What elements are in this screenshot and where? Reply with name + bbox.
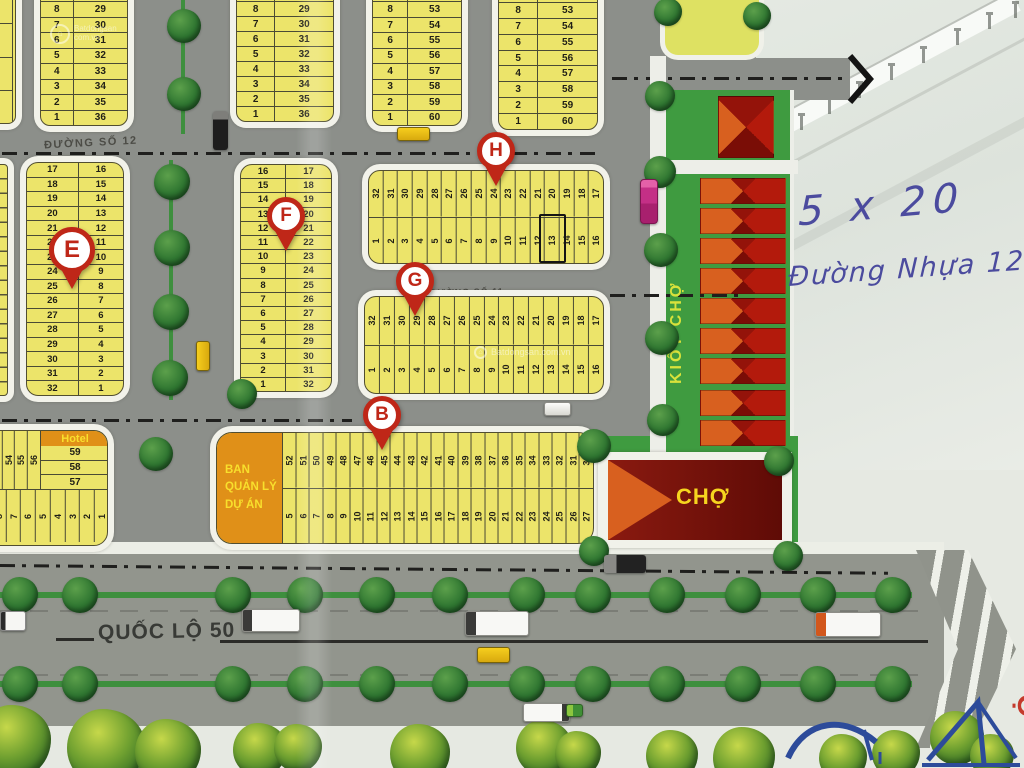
market-stall-icon (700, 358, 786, 384)
lot-number: 4 (241, 335, 285, 349)
lot-number: 58 (538, 82, 597, 98)
chevron-arrow-icon (844, 54, 878, 104)
lot-column: 987654321 (41, 0, 74, 125)
market-stall-icon (700, 178, 786, 204)
tree-icon (647, 404, 679, 436)
lot-number: 17 (444, 489, 458, 544)
lot-number: 4 (409, 346, 424, 394)
market-building: CHỢ (598, 452, 792, 548)
car-icon (477, 647, 510, 663)
highway-center-line (56, 638, 94, 641)
lot-number: 3 (373, 80, 407, 95)
lot-number: 18 (574, 171, 589, 217)
lot-number: 21 (528, 297, 543, 345)
bush-icon (555, 731, 601, 768)
block-hotel: 5253545556 Hotel 595857 987654321 (0, 424, 114, 552)
lot-number: 3 (499, 82, 537, 98)
lot-number: 11 (515, 218, 530, 264)
blue-sketch-bridge (780, 712, 890, 768)
block-top-4: 987654321 525354555657585960 (492, 0, 604, 136)
lamp-post-icon (922, 49, 925, 63)
lot-number: 8 (41, 2, 73, 17)
block-top-1: 987654321 282930313233343536 (34, 0, 134, 132)
car-icon (397, 127, 430, 141)
lot-number: 7 (454, 346, 469, 394)
truck-icon (523, 703, 570, 722)
lot-number: 6 (439, 346, 454, 394)
pin-label: B (363, 396, 401, 434)
lot-number: 3 (241, 349, 285, 363)
tree-icon (725, 577, 761, 613)
lot-number: 30 (286, 349, 331, 363)
lot-number: 25 (552, 489, 566, 544)
tree-icon (432, 666, 468, 702)
lot-number: 1 (237, 107, 274, 121)
lot-number: 12 (377, 489, 391, 544)
lot-number: 16 (241, 165, 285, 179)
edge-red-text: Ộ (1010, 694, 1024, 717)
lot-number: 6 (237, 32, 274, 47)
lot-number: 18 (573, 297, 588, 345)
lot-number: 2 (383, 218, 398, 264)
lot-number: 7 (237, 17, 274, 32)
tree-icon (359, 577, 395, 613)
lot-number: 14 (404, 489, 418, 544)
lot-number: 9 (486, 218, 501, 264)
tree-icon (287, 577, 323, 613)
lot-number: 4 (237, 62, 274, 77)
lot-number: 31 (275, 32, 333, 47)
tree-icon (2, 666, 38, 702)
lot-column: 9876 (0, 0, 13, 123)
lot-number: 57 (408, 64, 461, 79)
lot-number: 6 (241, 307, 285, 321)
lot-number: 20 (27, 207, 78, 222)
tree-icon (139, 437, 173, 471)
office-line: DỰ ÁN (225, 497, 282, 514)
lot-number: 17 (27, 163, 78, 178)
blue-sketch-crane (918, 688, 1024, 768)
lot-number: 19 (558, 297, 573, 345)
lot-number: 25 (286, 279, 331, 293)
lot-number: 35 (275, 92, 333, 107)
tree-icon (167, 9, 201, 43)
lot-number: 7 (456, 218, 471, 264)
lot-number: 17 (286, 165, 331, 179)
lot-number: 5 (35, 490, 50, 542)
car-icon (544, 402, 571, 416)
watermark-logo-icon: ⌂ (50, 24, 70, 44)
road-centerline (612, 77, 842, 80)
tree-icon (773, 541, 803, 571)
lot-number: 57 (538, 66, 597, 82)
pin-f: F (267, 197, 305, 251)
tree-icon (649, 577, 685, 613)
tree-icon (215, 577, 251, 613)
lot-number: 35 (512, 433, 526, 488)
tree-icon (649, 666, 685, 702)
lot-number: 24 (484, 297, 499, 345)
pin-e: E (49, 227, 95, 289)
lot-number: 2 (79, 490, 94, 542)
market-stall-icon (700, 420, 786, 446)
lot-number: 16 (79, 163, 123, 178)
lot-number: 2 (237, 92, 274, 107)
lot-number: 26 (286, 293, 331, 307)
lamp-post-icon (890, 66, 893, 80)
tree-icon (577, 429, 611, 463)
lot-number: 20 (544, 171, 559, 217)
watermark-text: Batdongsan (74, 24, 117, 33)
lot-number: 56 (408, 49, 461, 64)
lot-number: 27 (579, 489, 593, 544)
truck-icon (604, 555, 646, 573)
car-icon (566, 704, 583, 717)
lot-number: 29 (27, 338, 78, 353)
truck-icon (242, 609, 300, 632)
lot-number: 32 (369, 171, 383, 217)
lot-number: 1 (365, 346, 379, 394)
lot-number: 17 (588, 171, 603, 217)
lot-number: 6 (296, 489, 310, 544)
lot-number: 8 (323, 489, 337, 544)
lot-number: 54 (2, 431, 15, 489)
lot-number: 7 (6, 490, 21, 542)
lot-number: 2 (499, 98, 537, 114)
lot-number: 11 (363, 489, 377, 544)
lot-number: 33 (275, 62, 333, 77)
pin-label: E (49, 227, 95, 273)
tree-icon (215, 666, 251, 702)
lot-number: 26 (566, 489, 580, 544)
lot-number: 2 (379, 346, 394, 394)
lot-number: 42 (417, 433, 431, 488)
lot-number: 5 (237, 47, 274, 62)
lot-number: 1 (499, 114, 537, 129)
lot-number: 27 (286, 307, 331, 321)
lot-number: 16 (431, 489, 445, 544)
tree-icon (509, 577, 545, 613)
lot-number: 24 (539, 489, 553, 544)
lot-number: 21 (498, 489, 512, 544)
lot-number: 5 (79, 323, 123, 338)
lot-column: 282930313233343536 (275, 0, 333, 121)
lot-row: 987654321 (0, 490, 108, 542)
lot-number: 33 (539, 433, 553, 488)
lot-number: 28 (286, 321, 331, 335)
lot-number: 5 (41, 49, 73, 64)
lot-number: 1 (94, 490, 108, 542)
bush-icon (274, 724, 322, 768)
tree-icon (153, 294, 189, 330)
market-stall-icon (700, 390, 786, 416)
lot-number: 5 (283, 489, 296, 544)
lot-number: 15 (417, 489, 431, 544)
tree-icon (575, 577, 611, 613)
lot-number: 32 (275, 47, 333, 62)
lot-number: 14 (79, 192, 123, 207)
tree-icon (800, 577, 836, 613)
lot-number: 3 (41, 80, 73, 95)
market-stall-icon (700, 268, 786, 294)
market-label: CHỢ (676, 484, 730, 510)
lot-number: 9 (241, 264, 285, 278)
lot-number: 43 (404, 433, 418, 488)
lot-row: 5251504948474645444342414039383736353433… (283, 433, 593, 489)
block-top-3: 987654321 525354555657585960 (366, 0, 468, 132)
lot-number: 22 (513, 297, 528, 345)
block-b: BAN QUẢN LÝ DỰ ÁN 5251504948474645444342… (210, 426, 600, 550)
watermark-logo-icon: ⌂ (474, 346, 487, 359)
lot-number: 8 (499, 3, 537, 19)
lot-number: 2 (79, 367, 123, 382)
block-top-partial: 9876 (0, 0, 22, 130)
lot-number: 31 (286, 364, 331, 378)
lot-column: 987654321 (373, 0, 408, 125)
highway-label: QUỐC LỘ 50 (98, 619, 236, 646)
watermark: ⌂ Batdongsan com.vn (50, 24, 117, 44)
tree-icon (764, 446, 794, 476)
bush-icon (713, 727, 775, 768)
lot-number: 54 (408, 18, 461, 33)
tree-icon (62, 666, 98, 702)
bush-icon (390, 724, 450, 768)
highway-center-line (220, 640, 928, 643)
tree-icon (62, 577, 98, 613)
lot-column: 282930313233343536 (74, 0, 127, 125)
lot-number: 22 (512, 489, 526, 544)
market-stall-icon (700, 238, 786, 264)
lot-number: 47 (350, 433, 364, 488)
lot-number: 41 (431, 433, 445, 488)
lot-number: 58 (408, 80, 461, 95)
lot-number: 29 (275, 2, 333, 17)
lot-column: 525354555657585960 (408, 0, 461, 125)
tree-icon (154, 230, 190, 266)
pin-label: H (477, 132, 515, 170)
lot-number: 23 (286, 250, 331, 264)
lot-number: 15 (241, 179, 285, 193)
lot-number: 20 (485, 489, 499, 544)
lot-number: 51 (296, 433, 310, 488)
lot-number: 21 (530, 171, 545, 217)
tree-icon (2, 577, 38, 613)
lot-number: 6 (79, 309, 123, 324)
lamp-post-icon (828, 100, 831, 114)
lot-number: 27 (441, 171, 456, 217)
lot-number: 16 (588, 218, 603, 264)
truck-icon (815, 612, 881, 637)
lot-number: 55 (538, 35, 597, 51)
block-f: 16151413121110987654321 1718192021222324… (234, 158, 338, 398)
lot-row: 5253545556 (0, 431, 40, 489)
pin-g: G (396, 262, 434, 316)
lot-number: 36 (74, 111, 127, 125)
lot-number: 36 (498, 433, 512, 488)
lot-number: 18 (458, 489, 472, 544)
tree-icon (725, 666, 761, 702)
lot-number: 4 (373, 64, 407, 79)
car-icon (640, 179, 658, 224)
lot-number: 5 (241, 321, 285, 335)
lot-number: 30 (27, 352, 78, 367)
market-roof-triangle (608, 460, 672, 540)
car-icon (196, 341, 210, 371)
lot-number: 5 (427, 218, 442, 264)
bush-icon (135, 719, 201, 768)
lot-number: 40 (444, 433, 458, 488)
lot-number: 6 (499, 35, 537, 51)
lot-number: 53 (538, 3, 597, 19)
car-icon (213, 111, 228, 150)
lot-number: 34 (74, 80, 127, 95)
tree-icon (875, 577, 911, 613)
lot-number: 15 (79, 178, 123, 193)
lot-column: 525354555657585960 (538, 0, 597, 129)
tree-icon (154, 164, 190, 200)
tree-icon (167, 77, 201, 111)
lot-number: 22 (515, 171, 530, 217)
lot-number: 7 (309, 489, 323, 544)
lot-number: 32 (27, 381, 78, 395)
lot-number: 26 (456, 171, 471, 217)
lot-number: 5 (424, 346, 439, 394)
pin-h: H (477, 132, 515, 186)
lot-number: 29 (74, 2, 127, 17)
hand-drawn-box (539, 214, 566, 263)
block-top-2: 987654321 282930313233343536 (230, 0, 340, 128)
truck-icon (465, 611, 529, 636)
bus-icon (0, 611, 26, 631)
lot-column: 987654321 (499, 0, 538, 129)
lot-number: 27 (439, 297, 454, 345)
lot-number: 49 (323, 433, 337, 488)
office-line: QUẢN LÝ (225, 479, 282, 496)
lot-number: 30 (397, 171, 412, 217)
lot-number: 4 (79, 338, 123, 353)
lot-number: 9 (336, 489, 350, 544)
lot-number: 5 (499, 51, 537, 67)
lot-number: 10 (350, 489, 364, 544)
lot-number: 3 (79, 352, 123, 367)
lot-number: 17 (588, 297, 603, 345)
lot-number: 3 (237, 77, 274, 92)
bush-icon (646, 730, 698, 768)
lot-number: 6 (373, 33, 407, 48)
lot-number: 29 (286, 335, 331, 349)
office-line: BAN (225, 462, 282, 479)
lamp-post-icon (988, 15, 991, 29)
lot-number: 28 (27, 323, 78, 338)
lot-number: 60 (538, 114, 597, 129)
lot-number: 5 (373, 49, 407, 64)
market-stall-icon (700, 328, 786, 354)
hotel-lots: 595857 (41, 446, 108, 489)
lot-number: 4 (412, 218, 427, 264)
lot-number: 7 (499, 19, 537, 35)
lot-number: 29 (412, 171, 427, 217)
lot-number: 31 (383, 171, 398, 217)
lot-row: 5678910111213141516171819202122232425262… (283, 489, 593, 544)
lot-number: 15 (573, 346, 588, 394)
lot-number: 25 (469, 297, 484, 345)
lot-number: 1 (369, 218, 383, 264)
lot-number: 1 (41, 111, 73, 125)
lot-number: 8 (241, 279, 285, 293)
lot-number: 13 (79, 207, 123, 222)
tree-icon (432, 577, 468, 613)
lot-number: 31 (379, 297, 394, 345)
lot-number: 1 (79, 381, 123, 395)
lot-number: 20 (543, 297, 558, 345)
lot-number: 27 (27, 309, 78, 324)
lot-number: 18 (286, 179, 331, 193)
market-stall-icon (700, 298, 786, 324)
lot-number: 60 (408, 111, 461, 125)
lot-number: 32 (552, 433, 566, 488)
lot-number: 4 (499, 66, 537, 82)
service-road-line (2, 419, 352, 422)
lot-number: 28 (427, 171, 442, 217)
tree-icon (287, 666, 323, 702)
lot-number: 53 (408, 2, 461, 17)
tree-icon (644, 233, 678, 267)
lot-number: 8 (0, 490, 6, 542)
lot-number: 9 (0, 0, 12, 24)
lot-column: 987654321 (237, 0, 275, 121)
market-stall-icon (700, 208, 786, 234)
site-plan-map: QUỐC LỘ 50 ĐƯỜNG SỐ 12 ĐƯỜNG SỐ 11 9876 … (0, 0, 1024, 768)
tree-icon (875, 666, 911, 702)
lamp-post-icon (956, 31, 959, 45)
lot-number: 32 (286, 378, 331, 391)
lot-number: 2 (41, 95, 73, 110)
lot-row: 12345678910111213141516 (369, 218, 603, 264)
lot-number: 31 (27, 367, 78, 382)
lot-number: 56 (538, 51, 597, 67)
lot-number: 19 (559, 171, 574, 217)
lot-number: 6 (20, 490, 35, 542)
lot-number: 32 (365, 297, 379, 345)
lot-number: 4 (50, 490, 65, 542)
lot-number: 35 (74, 95, 127, 110)
management-office: BAN QUẢN LÝ DỰ ÁN (217, 433, 283, 543)
lot-number: 8 (373, 2, 407, 17)
tree-icon (227, 379, 257, 409)
lot-number: 2 (241, 364, 285, 378)
lot-number: 18 (27, 178, 78, 193)
lot-number: 7 (0, 58, 12, 91)
tree-icon (359, 666, 395, 702)
lot-number: 55 (408, 33, 461, 48)
lamp-post-icon (1014, 4, 1017, 18)
watermark-center: ⌂ Batdongsan.com.vn (474, 346, 571, 359)
lot-number: 54 (538, 19, 597, 35)
lot-number: 26 (27, 294, 78, 309)
lot-number: 34 (275, 77, 333, 92)
tree-icon (575, 666, 611, 702)
lot-number: 8 (0, 24, 12, 57)
lot-number: 56 (27, 431, 40, 489)
lot-number: 48 (336, 433, 350, 488)
lot-number: 7 (373, 18, 407, 33)
lot-number: 16 (588, 346, 603, 394)
tree-icon (743, 2, 771, 30)
pin-label: G (396, 262, 434, 300)
tree-icon (509, 666, 545, 702)
lot-number: 55 (14, 431, 27, 489)
lot-number: 19 (27, 192, 78, 207)
